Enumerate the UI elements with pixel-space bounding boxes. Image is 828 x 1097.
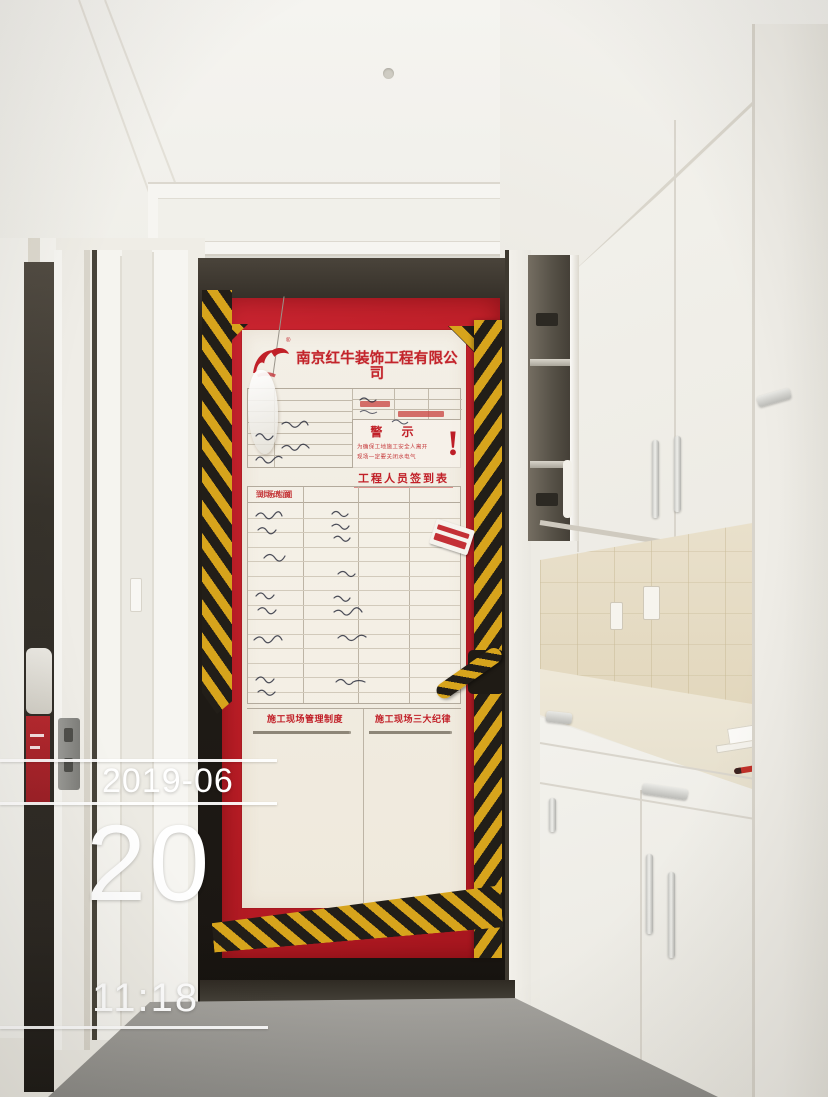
cabinet-hinge [536, 493, 558, 506]
hazard-tape-left [202, 290, 232, 714]
outlet-box [610, 602, 623, 630]
box-label-line [30, 746, 40, 749]
timestamp-time: 11:18 [92, 976, 199, 1021]
company-door-poster: ® 南京红牛装饰工程有限公司 警 示 为确保工地施工安全人离开 现场一定要关闭水… [242, 330, 466, 908]
downlight-hole [383, 68, 394, 79]
timestamp-rule [0, 1026, 268, 1029]
crumpled-paper [26, 648, 52, 714]
cabinet-seam [640, 790, 642, 1090]
door-strike-plate [58, 718, 80, 790]
strike-slot [64, 728, 73, 742]
cabinet-handle [652, 440, 659, 518]
outlet-box [643, 586, 660, 620]
cabinet-handle [646, 854, 653, 934]
ceiling-tray-inner [158, 198, 516, 242]
white-roll [563, 460, 572, 518]
left-door-leaf [54, 250, 90, 1050]
timestamp-day: 20 [86, 800, 212, 925]
hazard-tape-right [474, 320, 502, 958]
renovation-hallway-photo: ® 南京红牛装饰工程有限公司 警 示 为确保工地施工安全人离开 现场一定要关闭水… [0, 0, 828, 1097]
tall-cabinet-near [752, 24, 828, 1097]
pen-cap [734, 767, 742, 774]
cabinet-handle [549, 798, 556, 832]
cabinet-handle [668, 872, 675, 958]
cabinet-hinge [536, 313, 558, 326]
handwritten-entries [242, 330, 466, 908]
cabinet-shelf [530, 359, 570, 366]
box-label-line [30, 734, 44, 737]
timestamp-date: 2019-06 [102, 762, 234, 801]
latch-tab [130, 578, 142, 612]
cabinet-handle [674, 436, 681, 512]
